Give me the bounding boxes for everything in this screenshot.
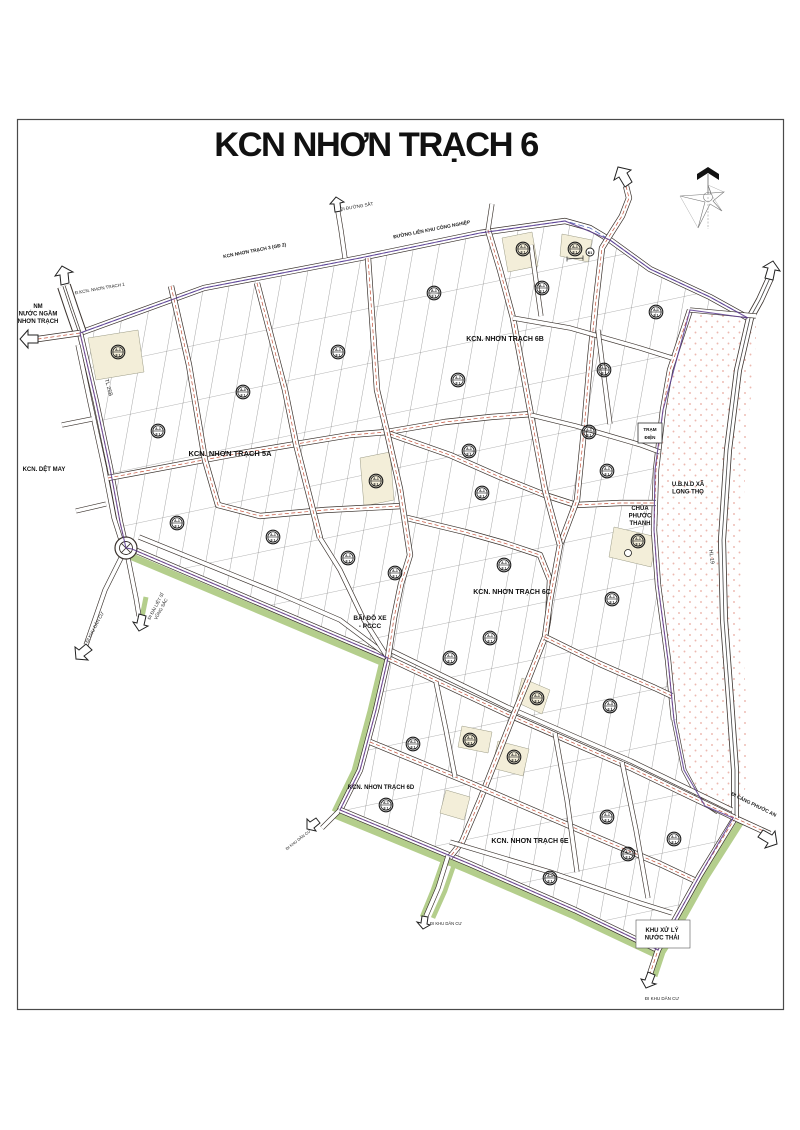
svg-text:KCN. NHƠN TRẠCH 5A: KCN. NHƠN TRẠCH 5A: [188, 449, 272, 458]
svg-text:A-1: A-1: [511, 753, 517, 757]
svg-text:8,1: 8,1: [468, 741, 473, 745]
svg-text:8,1: 8,1: [608, 707, 613, 711]
svg-text:8,1: 8,1: [241, 393, 246, 397]
svg-text:TRẠM: TRẠM: [643, 427, 656, 432]
svg-text:A-1: A-1: [547, 874, 553, 878]
svg-text:CHÙAPHƯỚCTHANH: CHÙAPHƯỚCTHANH: [629, 505, 652, 527]
svg-text:A-1: A-1: [383, 801, 389, 805]
svg-text:8,1: 8,1: [116, 353, 121, 357]
svg-text:8,1: 8,1: [626, 855, 631, 859]
svg-text:8,1: 8,1: [573, 250, 578, 254]
svg-text:8,1: 8,1: [432, 294, 437, 298]
svg-text:A-1: A-1: [653, 308, 659, 312]
svg-text:A-1: A-1: [487, 634, 493, 638]
svg-text:A-1: A-1: [392, 569, 398, 573]
svg-text:ĐI KHU DÂN CƯ: ĐI KHU DÂN CƯ: [645, 995, 680, 1001]
svg-text:A-1: A-1: [586, 428, 592, 432]
svg-text:A-1: A-1: [607, 702, 613, 706]
svg-text:A-1: A-1: [467, 736, 473, 740]
svg-text:8,1: 8,1: [602, 371, 607, 375]
svg-text:Đ1: Đ1: [588, 251, 593, 255]
svg-text:KCN. NHƠN TRẠCH 6E: KCN. NHƠN TRẠCH 6E: [491, 838, 568, 845]
svg-text:8,1: 8,1: [548, 879, 553, 883]
svg-text:A-1: A-1: [431, 289, 437, 293]
svg-text:ĐI KHU DÂN CƯ: ĐI KHU DÂN CƯ: [430, 921, 462, 926]
svg-text:A-1: A-1: [345, 554, 351, 558]
svg-text:A-1: A-1: [174, 519, 180, 523]
svg-text:A-1: A-1: [671, 835, 677, 839]
svg-text:8,1: 8,1: [488, 639, 493, 643]
svg-text:A-1: A-1: [373, 477, 379, 481]
svg-text:8,1: 8,1: [512, 758, 517, 762]
svg-text:A-1: A-1: [572, 245, 578, 249]
svg-text:A-1: A-1: [240, 388, 246, 392]
svg-text:8,1: 8,1: [456, 381, 461, 385]
svg-text:8,1: 8,1: [502, 566, 507, 570]
svg-text:A-1: A-1: [604, 467, 610, 471]
svg-text:8,1: 8,1: [156, 432, 161, 436]
svg-text:8,1: 8,1: [411, 745, 416, 749]
svg-text:8,1: 8,1: [605, 472, 610, 476]
svg-text:A-1: A-1: [115, 348, 121, 352]
svg-text:A-1: A-1: [539, 284, 545, 288]
svg-text:A-1: A-1: [155, 427, 161, 431]
svg-text:A-1: A-1: [534, 694, 540, 698]
svg-text:8,1: 8,1: [448, 659, 453, 663]
svg-text:A-1: A-1: [270, 533, 276, 537]
svg-text:8,1: 8,1: [374, 482, 379, 486]
svg-text:A-1: A-1: [447, 654, 453, 658]
svg-text:A-1: A-1: [479, 489, 485, 493]
svg-text:A-1: A-1: [455, 376, 461, 380]
svg-text:8,1: 8,1: [535, 699, 540, 703]
svg-text:A-1: A-1: [501, 561, 507, 565]
svg-text:8,1: 8,1: [605, 818, 610, 822]
svg-text:A-1: A-1: [410, 740, 416, 744]
svg-text:A-1: A-1: [335, 348, 341, 352]
svg-text:8,1: 8,1: [521, 250, 526, 254]
svg-text:KCN NHƠN TRẠCH 6: KCN NHƠN TRẠCH 6: [214, 126, 538, 164]
svg-text:A-1: A-1: [604, 813, 610, 817]
svg-text:8,1: 8,1: [480, 494, 485, 498]
svg-text:8,1: 8,1: [384, 806, 389, 810]
svg-text:A-1: A-1: [635, 537, 641, 541]
svg-text:A-1: A-1: [466, 447, 472, 451]
svg-text:8,1: 8,1: [393, 574, 398, 578]
svg-text:8,1: 8,1: [672, 840, 677, 844]
svg-text:KCN. DỆT MAY: KCN. DỆT MAY: [23, 465, 66, 473]
svg-text:A-1: A-1: [601, 366, 607, 370]
svg-text:ĐIỆN: ĐIỆN: [645, 433, 657, 440]
svg-text:8,1: 8,1: [271, 538, 276, 542]
svg-text:8,1: 8,1: [540, 289, 545, 293]
svg-text:8,1: 8,1: [636, 542, 641, 546]
svg-text:8,1: 8,1: [587, 433, 592, 437]
svg-text:KCN. NHƠN TRẠCH 6D: KCN. NHƠN TRẠCH 6D: [348, 785, 415, 791]
svg-text:A-1: A-1: [625, 850, 631, 854]
svg-text:8,1: 8,1: [654, 313, 659, 317]
svg-text:8,1: 8,1: [175, 524, 180, 528]
svg-text:8,1: 8,1: [336, 353, 341, 357]
svg-text:8,1: 8,1: [467, 452, 472, 456]
svg-text:8,1: 8,1: [346, 559, 351, 563]
svg-text:KCN. NHƠN TRẠCH 6B: KCN. NHƠN TRẠCH 6B: [466, 336, 544, 343]
svg-text:A-1: A-1: [520, 245, 526, 249]
svg-text:KCN. NHƠN TRẠCH 6C: KCN. NHƠN TRẠCH 6C: [473, 589, 551, 596]
svg-text:8,1: 8,1: [610, 600, 615, 604]
svg-text:A-1: A-1: [609, 595, 615, 599]
